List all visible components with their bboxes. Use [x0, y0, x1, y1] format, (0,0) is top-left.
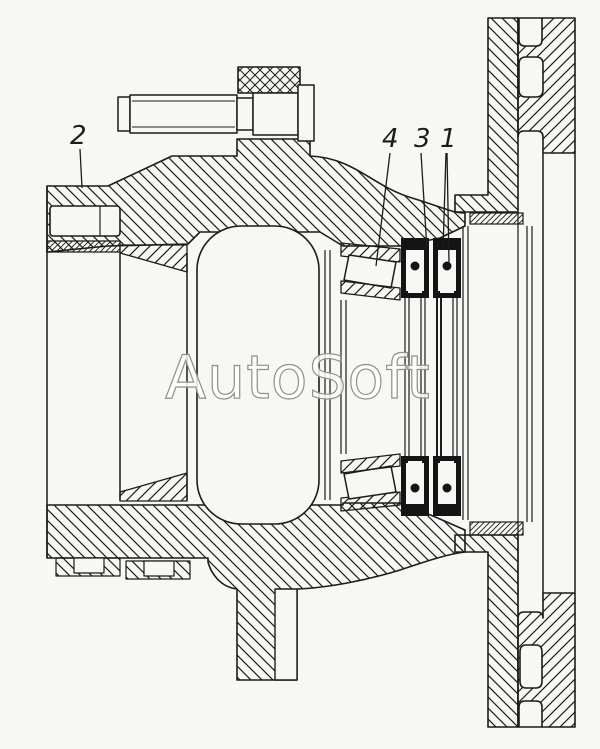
rim-liner-strip-top — [47, 241, 120, 252]
seal-lip — [402, 456, 408, 463]
stud-head — [253, 93, 298, 135]
rim-slot — [50, 206, 120, 236]
seal-lip — [402, 291, 408, 298]
stud-boss-block — [238, 67, 300, 93]
bottom-lug-slot — [144, 561, 174, 576]
callout-2-label: 2 — [70, 121, 87, 151]
bearing-bottom — [341, 454, 400, 511]
seal-spring — [411, 484, 420, 493]
seal-spring — [411, 262, 420, 271]
stud-washer-plate — [298, 85, 314, 141]
callout-4-label: 4 — [382, 124, 399, 154]
seal-spring — [443, 484, 452, 493]
stud-end-cap — [118, 97, 130, 131]
seal-lip — [422, 456, 428, 463]
stud-neck — [237, 98, 253, 130]
seal-lip — [454, 291, 460, 298]
watermark-text: AutoSoft — [165, 343, 431, 413]
watermark: AutoSoft — [165, 343, 431, 413]
retainer-strip-top — [470, 213, 523, 224]
seal-lip — [434, 291, 440, 298]
catalog-page: AutoSoft 2 4 3 1 — [0, 0, 600, 749]
seal-spring — [443, 262, 452, 271]
bearing-top — [341, 243, 400, 300]
wheel-hub-cross-section-diagram: AutoSoft 2 4 3 1 — [0, 0, 600, 749]
retainer-strip-bottom — [470, 522, 523, 535]
callout-1-label: 1 — [440, 124, 457, 154]
seal-lip — [422, 291, 428, 298]
seal-lip — [454, 456, 460, 463]
callout-3-label: 3 — [414, 124, 431, 154]
bolt-boss-bore — [275, 589, 297, 680]
seal-lip — [434, 456, 440, 463]
bottom-lug-slot — [74, 558, 104, 573]
